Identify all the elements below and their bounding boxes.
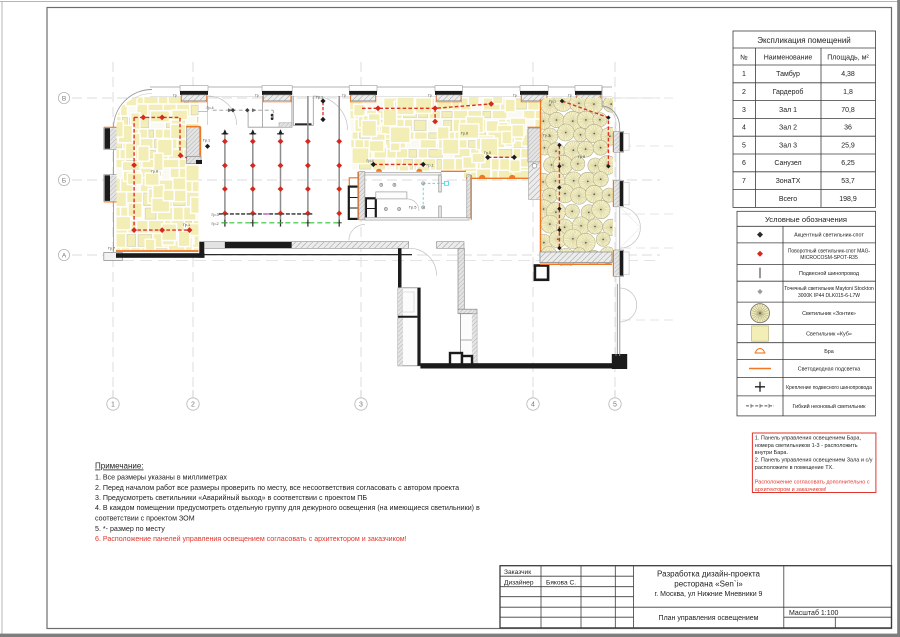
svg-text:Гр.8: Гр.8 bbox=[461, 132, 468, 136]
svg-text:Гр.1: Гр.1 bbox=[183, 223, 190, 227]
svg-text:7: 7 bbox=[742, 178, 746, 185]
svg-text:соответствии с проектом ЗОМ: соответствии с проектом ЗОМ bbox=[95, 514, 195, 522]
svg-text:25,9: 25,9 bbox=[841, 142, 855, 149]
svg-text:Гр: Гр bbox=[513, 94, 517, 98]
svg-text:Светильник «Куб»: Светильник «Куб» bbox=[806, 332, 852, 338]
svg-text:6: 6 bbox=[742, 160, 746, 167]
svg-text:1: 1 bbox=[111, 402, 115, 409]
svg-text:Гр.4: Гр.4 bbox=[367, 159, 374, 163]
svg-text:6,25: 6,25 bbox=[841, 160, 855, 167]
svg-text:номера светильников 1-3 - расп: номера светильников 1-3 - расположить bbox=[755, 443, 858, 449]
svg-text:Гр: Гр bbox=[428, 94, 432, 98]
svg-text:5: 5 bbox=[742, 142, 746, 149]
svg-text:198,9: 198,9 bbox=[839, 196, 857, 203]
svg-text:Светодиодная подсветка: Светодиодная подсветка bbox=[798, 367, 861, 373]
svg-text:Гр.8: Гр.8 bbox=[578, 155, 585, 159]
svg-text:Гр.4: Гр.4 bbox=[207, 106, 214, 110]
svg-text:Зал 1: Зал 1 bbox=[779, 107, 797, 114]
svg-text:Всего: Всего bbox=[779, 196, 797, 203]
svg-text:расположите в помещение ТХ.: расположите в помещение ТХ. bbox=[755, 465, 834, 471]
svg-text:ресторана «Sen`і»: ресторана «Sen`і» bbox=[674, 580, 743, 589]
svg-text:1. Все размеры указаны в милли: 1. Все размеры указаны в миллиметрах bbox=[95, 473, 227, 481]
svg-text:Заказчик: Заказчик bbox=[504, 569, 531, 576]
svg-text:В: В bbox=[62, 95, 66, 102]
svg-text:Дизайнер: Дизайнер bbox=[504, 578, 534, 586]
svg-text:Разработка дизайн-проекта: Разработка дизайн-проекта bbox=[657, 570, 761, 579]
svg-text:Светильник «Зонтик»: Светильник «Зонтик» bbox=[802, 311, 856, 317]
svg-text:Гр: Гр bbox=[173, 94, 177, 98]
svg-text:Гр.1: Гр.1 bbox=[427, 163, 434, 167]
svg-text:Подвесной шинопровод: Подвесной шинопровод bbox=[799, 270, 860, 277]
svg-text:Б: Б bbox=[62, 177, 66, 184]
svg-text:2: 2 bbox=[742, 89, 746, 96]
svg-text:Гр.2: Гр.2 bbox=[212, 222, 219, 226]
svg-text:Гардероб: Гардероб bbox=[773, 88, 804, 96]
svg-text:3. Предусмотреть светильники «: 3. Предусмотреть светильники «Аварийный … bbox=[95, 494, 367, 502]
svg-text:Масштаб 1:100: Масштаб 1:100 bbox=[789, 609, 839, 617]
svg-text:Экспликация помещений: Экспликация помещений bbox=[757, 36, 851, 45]
svg-text:Гр: Гр bbox=[342, 94, 346, 98]
svg-text:4: 4 bbox=[531, 402, 535, 409]
svg-text:Санузел: Санузел bbox=[774, 160, 801, 167]
svg-text:3000K IP44 DLK015-6-L7W: 3000K IP44 DLK015-6-L7W bbox=[798, 293, 860, 299]
svg-text:Гр.1: Гр.1 bbox=[203, 139, 210, 143]
svg-text:Гр.3: Гр.3 bbox=[543, 134, 550, 138]
svg-text:Гр.5: Гр.5 bbox=[484, 151, 491, 155]
svg-text:4: 4 bbox=[742, 125, 746, 132]
svg-text:70,8: 70,8 bbox=[841, 107, 855, 114]
svg-text:53,7: 53,7 bbox=[841, 178, 855, 185]
svg-text:Условные обозначения: Условные обозначения bbox=[765, 215, 847, 224]
svg-text:архитектором и заказчиком!: архитектором и заказчиком! bbox=[755, 487, 827, 493]
svg-text:внутри Бара.: внутри Бара. bbox=[755, 450, 789, 456]
svg-text:Расположение согласовать допол: Расположение согласовать дополнительно с bbox=[755, 480, 870, 486]
svg-text:Наименование: Наименование bbox=[764, 55, 813, 62]
svg-text:Площадь, м²: Площадь, м² bbox=[827, 55, 869, 62]
svg-text:4,38: 4,38 bbox=[841, 71, 855, 78]
svg-text:Гр.7: Гр.7 bbox=[108, 247, 115, 251]
svg-text:1. Панель управления освещение: 1. Панель управления освещением Бара, bbox=[755, 435, 862, 441]
svg-text:Тамбур: Тамбур bbox=[776, 70, 800, 78]
svg-text:Гр.5: Гр.5 bbox=[409, 205, 417, 210]
svg-text:Гр.1: Гр.1 bbox=[316, 96, 323, 100]
svg-text:Бякова С.: Бякова С. bbox=[546, 579, 576, 586]
svg-text:1,8: 1,8 bbox=[843, 89, 853, 96]
svg-text:г. Москва, ул Нижние Мневники: г. Москва, ул Нижние Мневники 9 bbox=[655, 591, 763, 598]
svg-text:Зал 2: Зал 2 bbox=[779, 125, 797, 132]
svg-text:5: 5 bbox=[613, 402, 617, 409]
svg-text:Примечание:: Примечание: bbox=[95, 462, 144, 471]
svg-text:5. *- размер по месту: 5. *- размер по месту bbox=[95, 525, 165, 533]
svg-text:А: А bbox=[62, 252, 67, 259]
svg-text:ЗонаТХ: ЗонаТХ bbox=[776, 178, 801, 185]
svg-text:Поворотный светильник-спот MAG: Поворотный светильник-спот MAG- bbox=[788, 247, 871, 254]
svg-text:2. Панель управления освещение: 2. Панель управления освещением Зала и с… bbox=[755, 457, 873, 463]
svg-text:Зал 3: Зал 3 bbox=[779, 142, 797, 149]
svg-text:2: 2 bbox=[191, 402, 195, 409]
svg-text:Крепление подвесного шинопрово: Крепление подвесного шинопровода bbox=[786, 385, 872, 391]
svg-text:Точечный светильник Maytoni St: Точечный светильник Maytoni Stockton bbox=[784, 285, 874, 292]
svg-text:MICROCOSM-SPOT-R35: MICROCOSM-SPOT-R35 bbox=[800, 255, 858, 261]
svg-text:6. Расположение панелей управл: 6. Расположение панелей управления освещ… bbox=[95, 535, 407, 543]
svg-text:1: 1 bbox=[742, 71, 746, 78]
svg-text:3: 3 bbox=[742, 107, 746, 114]
svg-text:2. Перед началом работ все раз: 2. Перед началом работ все размеры прове… bbox=[95, 484, 459, 492]
svg-text:Гр: Гр bbox=[568, 94, 572, 98]
svg-text:Гр.8: Гр.8 bbox=[151, 170, 158, 174]
svg-text:Гр: Гр bbox=[255, 94, 259, 98]
svg-text:3: 3 bbox=[359, 402, 363, 409]
svg-text:Гр.1: Гр.1 bbox=[549, 100, 556, 104]
svg-text:Гибкий неоновый светильник: Гибкий неоновый светильник bbox=[793, 403, 867, 410]
svg-text:4. В каждом помещении предусмо: 4. В каждом помещении предусмотреть отде… bbox=[95, 504, 480, 512]
svg-text:Гр.3: Гр.3 bbox=[212, 213, 219, 217]
svg-text:Бра: Бра bbox=[824, 349, 834, 355]
svg-text:План управления освещением: План управления освещением bbox=[659, 615, 759, 622]
svg-text:№: № bbox=[740, 55, 748, 62]
svg-text:Акцентный светильник-спот: Акцентный светильник-спот bbox=[794, 232, 864, 239]
svg-text:36: 36 bbox=[844, 125, 852, 132]
